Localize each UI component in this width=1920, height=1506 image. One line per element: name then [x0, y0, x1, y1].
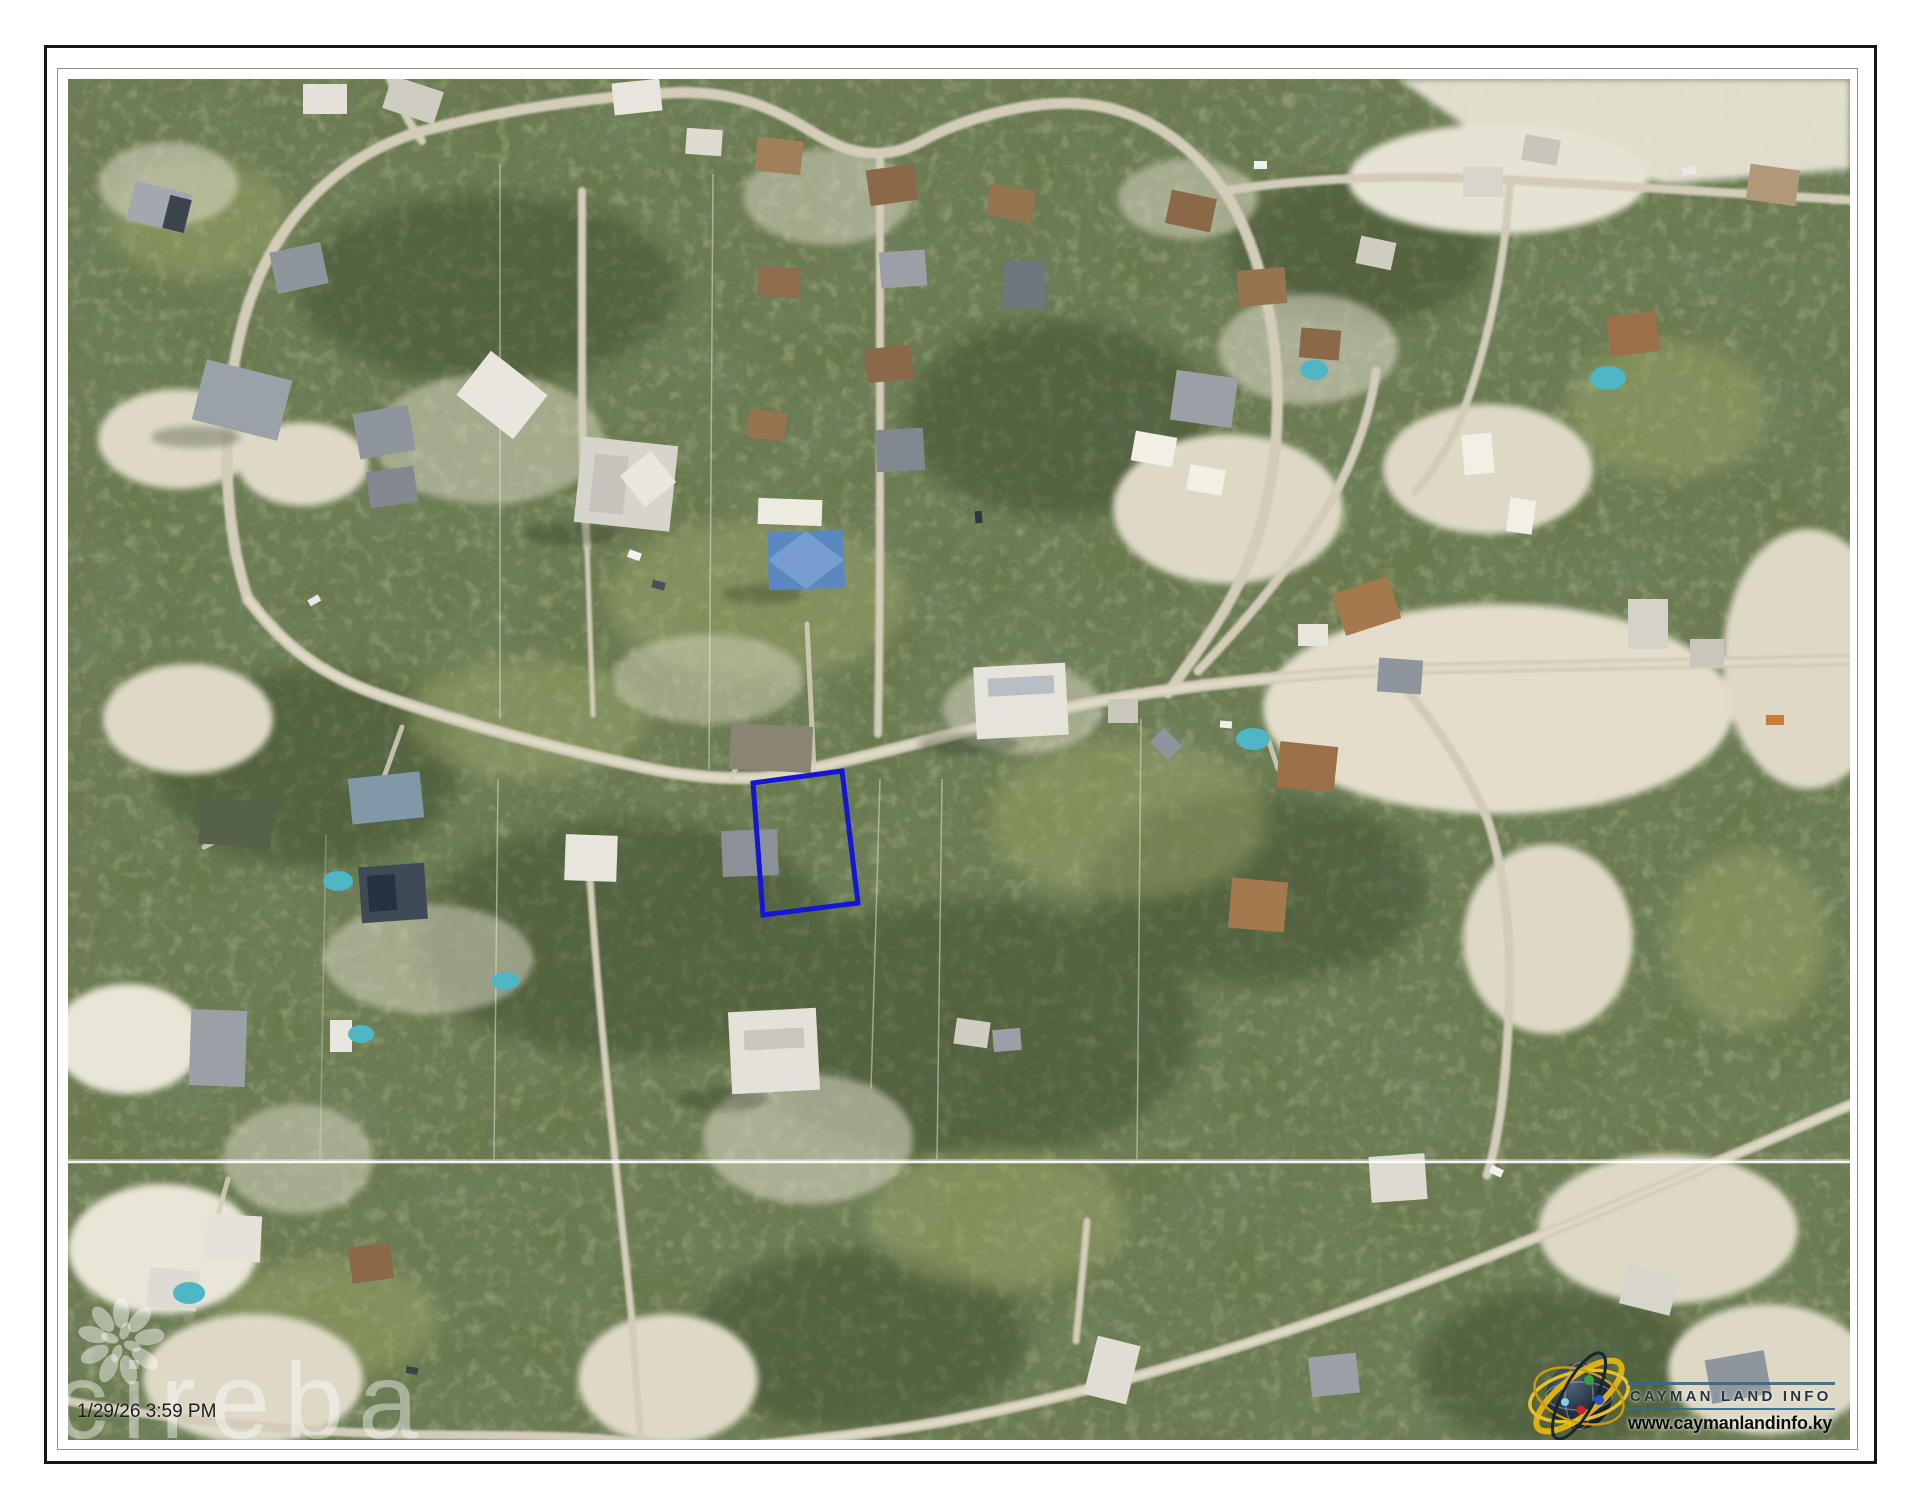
- stitch-line: [68, 1160, 1850, 1162]
- globe-orbits-icon: [1523, 1339, 1635, 1440]
- aerial-photo: cireba 1/29/26 3:59 PM: [68, 79, 1850, 1440]
- listing-aerial-page: cireba 1/29/26 3:59 PM: [0, 0, 1920, 1506]
- cireba-watermark-text: cireba: [68, 1347, 432, 1440]
- brand-url: www.caymanlandinfo.ky: [1628, 1410, 1835, 1434]
- cayman-land-info-logo: CAYMAN LAND INFO www.caymanlandinfo.ky: [1628, 1382, 1835, 1434]
- capture-timestamp: 1/29/26 3:59 PM: [77, 1401, 216, 1423]
- aerial-imagery: [68, 79, 1850, 1440]
- brand-rule-top: [1628, 1382, 1835, 1385]
- brand-name: CAYMAN LAND INFO: [1628, 1385, 1835, 1408]
- brand-rule-bottom: [1628, 1408, 1835, 1411]
